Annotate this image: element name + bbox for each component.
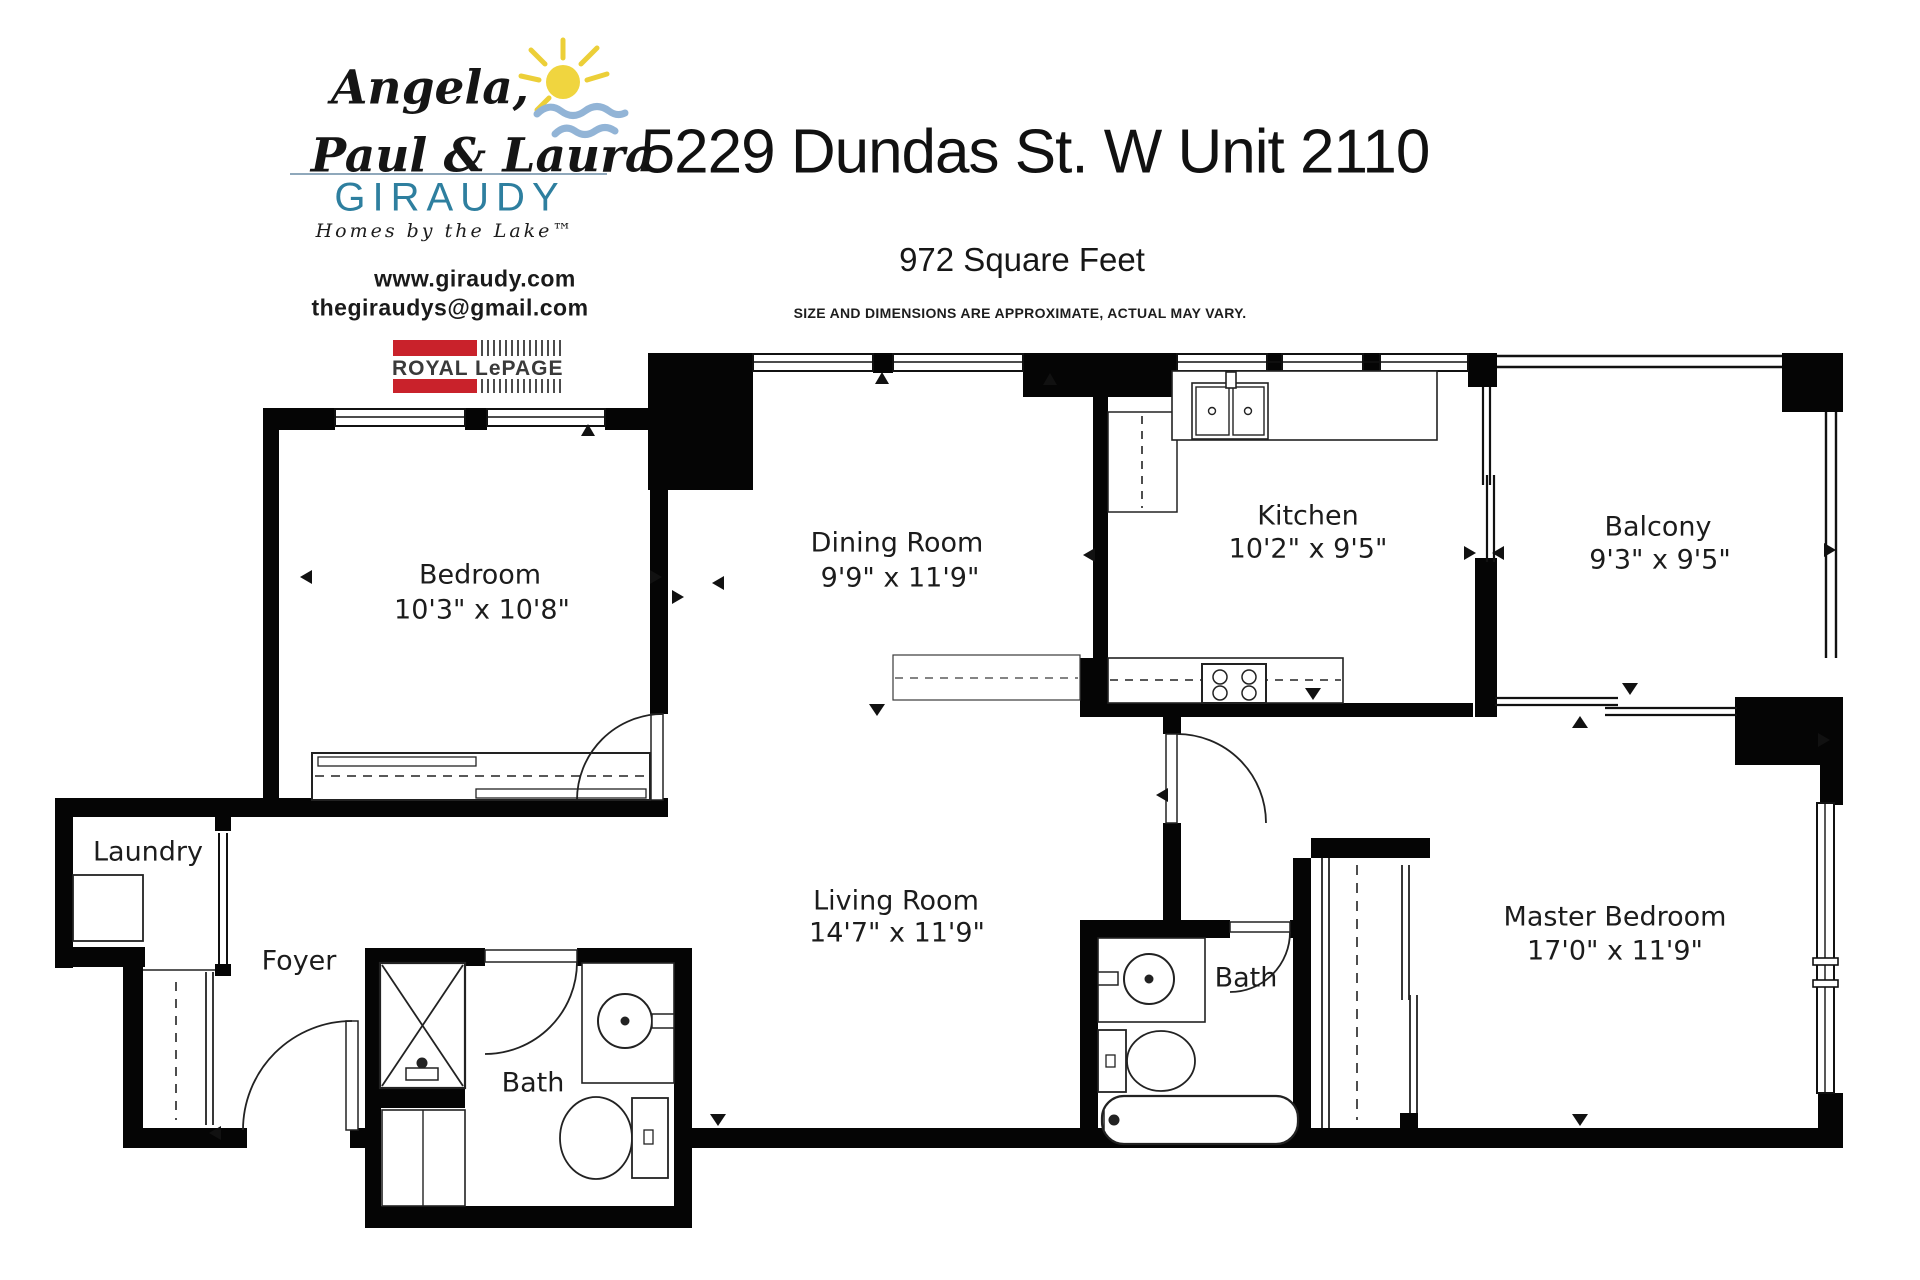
floor-plan-drawing — [0, 0, 1920, 1280]
room-dims-master-bedroom: 17'0" x 11'9" — [1527, 936, 1703, 967]
balcony-sliding-door-master — [1495, 698, 1737, 715]
room-dims-kitchen: 10'2" x 9'5" — [1229, 534, 1388, 565]
room-dims-dining-room: 9'9" x 11'9" — [821, 563, 980, 594]
kitchen-top-counter — [1172, 371, 1437, 440]
floor-plan-page: Angela, Paul & Laura GIRAUDY Hom — [0, 0, 1920, 1280]
main-bath-door — [485, 950, 577, 1054]
ensuite-sink-icon — [1098, 938, 1205, 1022]
main-bath-sink-icon — [582, 963, 674, 1083]
room-label-balcony: Balcony — [1604, 512, 1711, 543]
room-label-laundry: Laundry — [93, 837, 203, 868]
laundry-pocket-door — [219, 833, 227, 964]
stove-icon — [1202, 664, 1266, 703]
room-label-dining-room: Dining Room — [811, 528, 984, 559]
kitchen-bottom-counter — [1108, 658, 1343, 703]
ensuite-toilet-icon — [1098, 1030, 1195, 1092]
room-label-living-room: Living Room — [813, 886, 979, 917]
foyer-closet — [143, 970, 215, 1125]
room-label-kitchen: Kitchen — [1257, 501, 1358, 532]
balcony-sliding-door-kitchen — [1483, 387, 1494, 562]
room-label-foyer: Foyer — [262, 946, 337, 977]
main-bath-toilet-icon — [560, 1097, 668, 1179]
master-closet — [1322, 858, 1417, 1128]
room-dims-living-room: 14'7" x 11'9" — [809, 918, 985, 949]
main-bath-shower-icon — [380, 963, 465, 1088]
room-label-bath-ensuite: Bath — [1215, 963, 1278, 994]
room-label-bedroom: Bedroom — [419, 560, 541, 591]
room-dims-balcony: 9'3" x 9'5" — [1589, 545, 1731, 576]
ensuite-bathtub-icon — [1102, 1096, 1298, 1144]
bedroom-closet — [312, 753, 650, 800]
dining-peninsula-counter — [893, 655, 1080, 700]
entry-door — [243, 1021, 358, 1130]
room-dims-bedroom: 10'3" x 10'8" — [394, 595, 570, 626]
laundry-appliance-icon — [73, 875, 143, 941]
master-hall-door — [1166, 734, 1266, 823]
main-bath-vanity — [382, 1110, 465, 1206]
room-label-master-bedroom: Master Bedroom — [1504, 902, 1727, 933]
kitchen-pantry — [1108, 412, 1177, 512]
room-label-bath-main: Bath — [502, 1068, 565, 1099]
